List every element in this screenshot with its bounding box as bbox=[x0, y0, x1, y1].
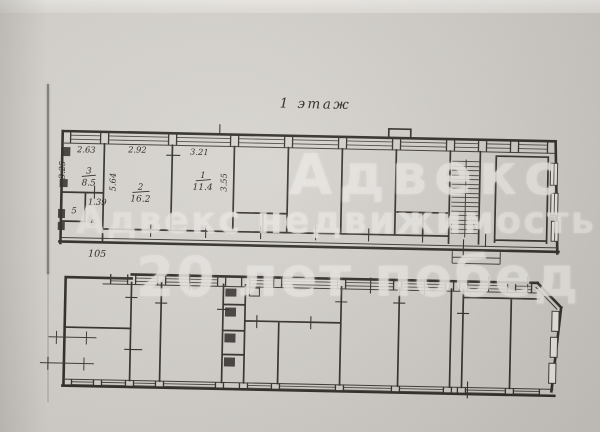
photo-vignette bbox=[0, 0, 600, 432]
floor-plan-photo: 1 этаж 2.63 2.92 3.21 3.25 5.64 3.55 3 8… bbox=[0, 0, 600, 432]
